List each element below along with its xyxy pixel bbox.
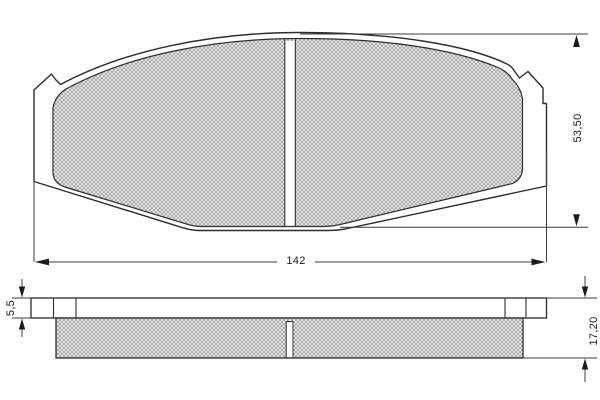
- center-groove: [285, 41, 295, 226]
- arrow-down-icon: [573, 214, 580, 226]
- arrow-down-icon: [582, 287, 588, 298]
- top-view: [34, 33, 588, 266]
- groove-slot: [286, 322, 293, 358]
- dimension-total-thickness: [523, 276, 597, 382]
- dimension-label-pad-height: 53,50: [572, 113, 584, 142]
- arrow-right-icon: [532, 259, 546, 266]
- backplate-profile: [31, 298, 547, 318]
- technical-drawing: [0, 0, 600, 400]
- dimension-label-backplate-thickness: 5,5: [5, 300, 17, 316]
- arrow-down-icon: [19, 287, 25, 298]
- dimension-label-total-thickness: 17,20: [588, 316, 600, 345]
- arrow-up-icon: [573, 35, 580, 47]
- side-view: [12, 276, 597, 382]
- arrow-up-icon: [582, 359, 588, 370]
- arrow-up-icon: [19, 319, 25, 330]
- dimension-label-pad-width: 142: [286, 255, 305, 267]
- arrow-left-icon: [35, 259, 49, 266]
- drawing-canvas: 142 53,50 5,5 17,20: [0, 0, 600, 400]
